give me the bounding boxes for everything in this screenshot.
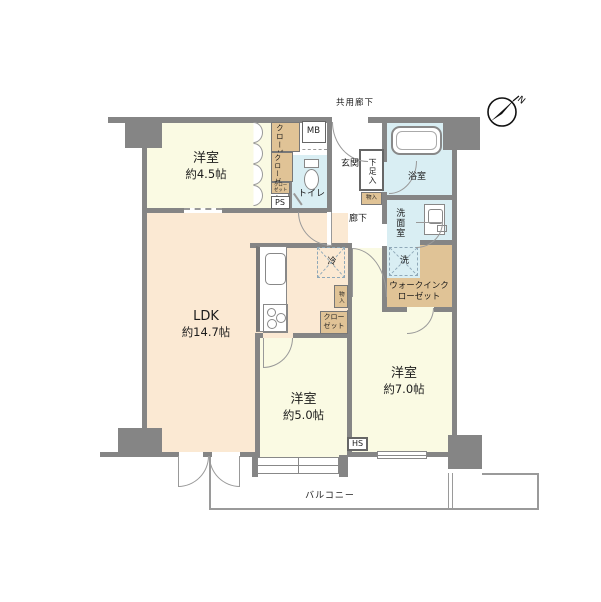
- closet-b-label: クローゼット: [273, 154, 282, 182]
- balcony-line-bottom: [209, 508, 539, 510]
- ldk-label: LDK 約14.7帖: [160, 309, 252, 340]
- wall-stub-left: [100, 452, 119, 457]
- entrance-label: 玄関: [335, 159, 365, 170]
- balcony-line-right: [537, 473, 539, 510]
- toilet-label: トイレ: [296, 189, 327, 200]
- stove-burner-2: [276, 313, 286, 323]
- bathtub-inner: [396, 131, 437, 150]
- sliding-partition: [184, 208, 222, 213]
- washroom-door-opening: [382, 224, 387, 246]
- bedroom2-balcony-window: [257, 457, 339, 474]
- wall-bedroom2-window-right: [339, 455, 348, 477]
- entrance-door-arc: [332, 122, 368, 162]
- balcony-label: バルコニー: [300, 491, 360, 502]
- kitchen-counter: [256, 246, 287, 332]
- shoe-cabinet-label: 下足入: [367, 154, 377, 188]
- floor-plan: クローゼット クローゼット クローゼット PS MB 下足入 物入 物入 クロー…: [0, 0, 601, 602]
- closet-small: クローゼット: [271, 182, 290, 194]
- kitchen-sink: [265, 253, 286, 285]
- wall-bath-washroom: [387, 195, 452, 200]
- wall-entrance-left: [327, 122, 332, 212]
- bedroom3-window: [377, 451, 427, 459]
- hs-label: HS: [349, 439, 366, 449]
- washer-symbol: 洗: [389, 247, 418, 276]
- compass-icon: N: [483, 90, 527, 130]
- ldk-size: 約14.7帖: [160, 325, 252, 339]
- window-rail-2: [378, 455, 426, 456]
- storage-entry-label: 物入: [362, 195, 381, 202]
- bath-label: 浴室: [399, 172, 435, 183]
- closet-a: クローゼット: [271, 122, 300, 152]
- wall-ldk-bottom: [162, 452, 179, 457]
- bedroom1-name: 洋室: [160, 151, 252, 167]
- storage-kitchen: 物入: [334, 285, 348, 308]
- closet-b: クローゼット: [271, 152, 293, 182]
- shared-corridor-label: 共用廊下: [325, 98, 385, 109]
- toilet-tank: [304, 159, 319, 168]
- closet-c: クローゼット: [320, 311, 348, 334]
- wall-right: [452, 150, 457, 437]
- fridge-label: 冷: [318, 257, 346, 268]
- ps-box: PS: [271, 196, 290, 209]
- pillar-top-left: [125, 117, 162, 148]
- pillar-bottom-right: [448, 435, 482, 469]
- storage-entry: 物入: [361, 192, 382, 205]
- bedroom1-label: 洋室 約4.5帖: [160, 151, 252, 182]
- balcony-line-left: [209, 457, 211, 510]
- balcony-divider-1: [448, 473, 449, 508]
- bedroom3-size: 約7.0帖: [362, 382, 446, 396]
- overhead-cabinet-line: [297, 147, 327, 150]
- wic-label: ウォークインクローゼット: [389, 281, 449, 303]
- mb-box: MB: [302, 121, 326, 143]
- ldk-name: LDK: [160, 309, 252, 325]
- fridge-symbol: 冷: [317, 247, 345, 278]
- closet-a-label: クローゼット: [275, 124, 284, 152]
- storage-kitchen-label: 物入: [337, 288, 344, 307]
- window-mid: [298, 458, 299, 473]
- wall-left: [142, 148, 147, 431]
- balcony-door-arc-right: [209, 456, 240, 487]
- balcony-line-top-right: [482, 473, 539, 475]
- washer-label: 洗: [390, 256, 419, 267]
- stove-burner-1: [267, 308, 276, 317]
- pillar-top-right: [443, 117, 480, 150]
- bedroom2-label: 洋室 約5.0帖: [261, 392, 346, 423]
- bedroom2-name: 洋室: [261, 392, 346, 408]
- bedroom3-name: 洋室: [362, 366, 446, 382]
- bedroom1-size: 約4.5帖: [160, 167, 252, 181]
- stove-burner-3: [267, 319, 277, 329]
- hallway-label: 廊下: [343, 214, 373, 225]
- balcony-divider-2: [452, 473, 453, 508]
- mb-label: MB: [303, 126, 324, 137]
- wall-bedroom2-left: [255, 338, 260, 470]
- bedroom2-size: 約5.0帖: [261, 408, 346, 422]
- pillar-bottom-left: [118, 428, 162, 457]
- hs-box: HS: [347, 437, 368, 451]
- bathtub: [391, 126, 442, 155]
- balcony-door-arc-left: [178, 456, 209, 487]
- compass-north-label: N: [515, 95, 527, 107]
- bedroom3-label: 洋室 約7.0帖: [362, 366, 446, 397]
- ps-label: PS: [272, 198, 288, 208]
- washroom-label: 洗面室: [393, 204, 404, 242]
- kitchen-stove: [263, 304, 288, 333]
- toilet-bowl: [304, 169, 319, 190]
